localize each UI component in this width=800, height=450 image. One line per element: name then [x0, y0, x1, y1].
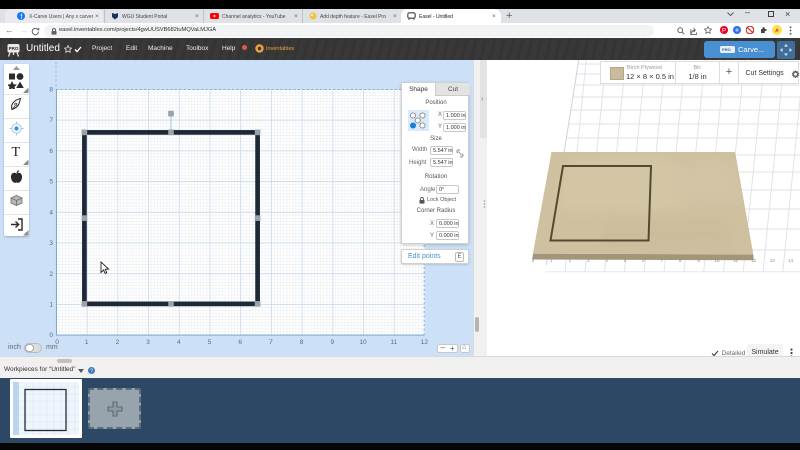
svg-text:6: 6 [238, 339, 242, 346]
svg-text:10: 10 [714, 258, 720, 263]
svg-text:5: 5 [49, 179, 53, 186]
svg-text:3: 3 [49, 240, 53, 247]
svg-text:14: 14 [788, 258, 794, 263]
svg-text:8: 8 [300, 339, 304, 346]
svg-text:1: 1 [49, 302, 53, 309]
svg-text:2: 2 [49, 271, 53, 278]
svg-text:7: 7 [269, 339, 273, 346]
svg-text:f: f [20, 14, 22, 20]
svg-text:11: 11 [733, 258, 738, 263]
svg-text:?: ? [90, 369, 93, 374]
svg-text:P: P [722, 29, 726, 35]
svg-text:4: 4 [177, 339, 181, 346]
svg-text:8: 8 [49, 87, 53, 94]
svg-text:1: 1 [85, 339, 89, 346]
svg-text:12: 12 [421, 339, 429, 346]
svg-text:7: 7 [49, 117, 53, 124]
svg-text:6: 6 [49, 148, 53, 155]
svg-text:PRO: PRO [9, 46, 19, 51]
svg-text:11: 11 [390, 339, 397, 346]
svg-text:3: 3 [146, 339, 150, 346]
svg-text:2: 2 [116, 339, 120, 346]
svg-text:5: 5 [208, 339, 212, 346]
svg-text:10: 10 [359, 339, 367, 346]
svg-text:9: 9 [330, 339, 334, 346]
svg-text:0: 0 [49, 332, 53, 339]
svg-text:4: 4 [49, 209, 53, 216]
svg-text:13: 13 [770, 258, 776, 263]
svg-text:12: 12 [751, 258, 757, 263]
